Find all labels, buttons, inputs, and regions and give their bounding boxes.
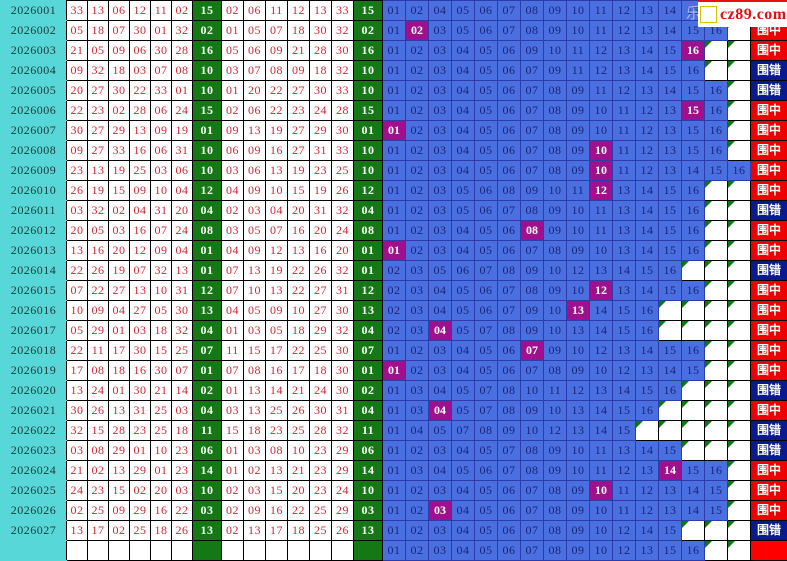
candidate-cell: 12 <box>613 361 636 381</box>
candidate-cell: 14 <box>636 241 659 261</box>
candidate-cell: 14 <box>636 281 659 301</box>
red-ball-cell: 06 <box>130 41 151 61</box>
blue-ball-cell: 13 <box>354 301 383 321</box>
red-ball-cell: 30 <box>130 21 151 41</box>
blue-ball-cell: 10 <box>354 161 383 181</box>
blue-ball-cell: 04 <box>354 201 383 221</box>
red-ball-sorted-cell: 31 <box>332 281 354 301</box>
candidate-cell: 13 <box>659 501 682 521</box>
candidate-empty-cell <box>682 261 705 281</box>
candidate-cell: 11 <box>590 441 613 461</box>
red-ball-sorted-cell: 06 <box>244 161 266 181</box>
red-ball-cell: 10 <box>151 441 172 461</box>
candidate-cell: 16 <box>705 101 728 121</box>
red-ball-cell <box>88 541 109 561</box>
blue-ball-cell: 01 <box>354 241 383 261</box>
red-ball-sorted-cell: 02 <box>222 481 244 501</box>
candidate-cell: 02 <box>383 261 406 281</box>
table-row: 2026004093218030708100307080918321001020… <box>1 61 787 81</box>
red-ball-sorted-cell: 09 <box>244 181 266 201</box>
candidate-empty-cell <box>705 421 728 441</box>
candidate-cell: 15 <box>613 301 636 321</box>
candidate-cell: 06 <box>498 501 521 521</box>
candidate-cell: 08 <box>544 101 567 121</box>
logo-partial-char: 乐 <box>686 0 698 27</box>
red-ball-sorted-cell: 04 <box>222 181 244 201</box>
candidate-cell: 07 <box>498 201 521 221</box>
red-ball-sorted-cell: 01 <box>222 81 244 101</box>
candidate-cell: 05 <box>429 261 452 281</box>
candidate-empty-cell <box>728 361 751 381</box>
blue-ball-cell: 01 <box>354 121 383 141</box>
red-ball-cell: 32 <box>172 321 193 341</box>
red-ball-cell: 07 <box>67 281 88 301</box>
table-row: 2026016100904270530130405091027301302030… <box>1 301 787 321</box>
blue-ball-cell: 15 <box>354 101 383 121</box>
candidate-empty-cell <box>659 401 682 421</box>
blue-ball-cell: 10 <box>354 81 383 101</box>
red-ball-cell: 29 <box>130 501 151 521</box>
red-ball-sorted-cell: 26 <box>332 521 354 541</box>
red-ball-cell <box>130 541 151 561</box>
red-ball-sorted-cell: 17 <box>266 341 288 361</box>
red-ball-cell: 16 <box>130 221 151 241</box>
candidate-cell: 12 <box>613 81 636 101</box>
candidate-cell: 08 <box>521 281 544 301</box>
red-ball-cell: 23 <box>88 481 109 501</box>
candidate-cell: 15 <box>682 461 705 481</box>
red-ball-sorted-cell: 03 <box>222 401 244 421</box>
red-ball-sorted-cell: 32 <box>332 421 354 441</box>
red-ball-sorted-cell: 01 <box>222 321 244 341</box>
candidate-cell: 06 <box>498 521 521 541</box>
candidate-cell: 05 <box>475 361 498 381</box>
red-ball-sorted-cell: 29 <box>332 441 354 461</box>
period-cell: 2026006 <box>1 101 67 121</box>
red-ball-cell: 09 <box>109 501 130 521</box>
candidate-cell: 16 <box>682 541 705 561</box>
candidate-cell: 03 <box>429 61 452 81</box>
red-ball-sorted-cell: 16 <box>310 241 332 261</box>
candidate-cell: 03 <box>429 41 452 61</box>
candidate-empty-cell <box>705 221 728 241</box>
candidate-cell: 12 <box>590 341 613 361</box>
red-ball-sorted-cell: 13 <box>244 521 266 541</box>
red-ball-sorted-cell: 07 <box>244 61 266 81</box>
candidate-empty-cell <box>705 541 728 561</box>
red-ball-cell <box>109 541 130 561</box>
red-ball-cell: 03 <box>172 401 193 421</box>
candidate-empty-cell <box>636 421 659 441</box>
table-row: 2026027131702251826130213171825261301020… <box>1 521 787 541</box>
candidate-cell: 08 <box>498 261 521 281</box>
candidate-cell: 02 <box>406 341 429 361</box>
candidate-cell: 02 <box>406 481 429 501</box>
candidate-cell: 16 <box>682 201 705 221</box>
table-row: 2026003210509063028160506092128301601020… <box>1 41 787 61</box>
red-ball-sorted-cell: 03 <box>244 481 266 501</box>
candidate-cell: 03 <box>406 461 429 481</box>
candidate-hit-cell: 01 <box>383 121 406 141</box>
red-ball-sorted-cell: 15 <box>244 341 266 361</box>
candidate-cell: 06 <box>475 461 498 481</box>
candidate-empty-cell <box>728 61 751 81</box>
red-ball-sorted-cell: 18 <box>288 521 310 541</box>
candidate-cell: 02 <box>406 361 429 381</box>
candidate-hit-cell: 10 <box>590 161 613 181</box>
red-ball-cell: 01 <box>151 21 172 41</box>
red-ball-cell: 26 <box>67 181 88 201</box>
candidate-cell: 06 <box>498 81 521 101</box>
candidate-cell: 13 <box>613 61 636 81</box>
red-ball-sorted-cell: 30 <box>310 81 332 101</box>
candidate-empty-cell <box>705 241 728 261</box>
candidate-cell: 13 <box>567 401 590 421</box>
red-ball-sorted-cell: 33 <box>332 1 354 21</box>
red-ball-cell: 27 <box>88 121 109 141</box>
red-ball-cell: 05 <box>67 321 88 341</box>
red-ball-sorted-cell: 23 <box>310 461 332 481</box>
candidate-hit-cell: 01 <box>383 241 406 261</box>
candidate-cell: 08 <box>544 481 567 501</box>
result-cell: 围中 <box>751 481 787 501</box>
red-ball-sorted-cell: 26 <box>288 401 310 421</box>
candidate-hit-cell: 04 <box>429 321 452 341</box>
red-ball-sorted-cell: 25 <box>310 521 332 541</box>
red-ball-cell: 22 <box>172 501 193 521</box>
red-ball-cell: 16 <box>88 241 109 261</box>
candidate-cell: 06 <box>475 21 498 41</box>
period-cell: 2026026 <box>1 501 67 521</box>
red-ball-cell: 14 <box>172 381 193 401</box>
red-ball-cell: 20 <box>172 201 193 221</box>
candidate-cell: 08 <box>544 501 567 521</box>
candidate-cell: 02 <box>406 1 429 21</box>
blue-ball-cell: 16 <box>193 41 222 61</box>
candidate-cell: 13 <box>590 261 613 281</box>
candidate-cell: 08 <box>521 1 544 21</box>
red-ball-cell: 24 <box>67 481 88 501</box>
candidate-cell: 04 <box>452 481 475 501</box>
candidate-cell: 06 <box>498 361 521 381</box>
candidate-cell: 07 <box>521 101 544 121</box>
candidate-cell: 13 <box>567 421 590 441</box>
candidate-cell: 10 <box>567 441 590 461</box>
candidate-hit-cell: 10 <box>590 141 613 161</box>
candidate-cell: 13 <box>636 541 659 561</box>
blue-ball-cell: 10 <box>193 141 222 161</box>
period-cell: 2026024 <box>1 461 67 481</box>
red-ball-sorted-cell: 10 <box>244 281 266 301</box>
red-ball-sorted-cell: 02 <box>222 201 244 221</box>
red-ball-cell: 27 <box>130 301 151 321</box>
candidate-cell: 12 <box>613 461 636 481</box>
candidate-cell: 09 <box>521 321 544 341</box>
red-ball-sorted-cell: 33 <box>332 81 354 101</box>
candidate-cell: 07 <box>521 241 544 261</box>
table-row: 2026023030829011023060103081023290601020… <box>1 441 787 461</box>
candidate-cell: 05 <box>452 21 475 41</box>
candidate-empty-cell <box>728 221 751 241</box>
period-cell: 2026002 <box>1 21 67 41</box>
result-cell: 围中 <box>751 501 787 521</box>
table-row: 2026013131620120904010409121316200101020… <box>1 241 787 261</box>
candidate-cell: 07 <box>521 521 544 541</box>
candidate-cell: 05 <box>452 181 475 201</box>
red-ball-sorted-cell <box>222 541 244 561</box>
candidate-cell: 15 <box>659 61 682 81</box>
red-ball-cell: 31 <box>130 401 151 421</box>
result-cell: 围中 <box>751 301 787 321</box>
red-ball-sorted-cell: 11 <box>266 1 288 21</box>
candidate-cell: 10 <box>590 501 613 521</box>
red-ball-sorted-cell: 20 <box>288 481 310 501</box>
candidate-cell: 16 <box>682 221 705 241</box>
candidate-cell: 06 <box>498 121 521 141</box>
candidate-cell: 07 <box>521 541 544 561</box>
red-ball-cell: 20 <box>67 221 88 241</box>
candidate-cell: 13 <box>613 181 636 201</box>
red-ball-cell: 29 <box>109 441 130 461</box>
period-cell: 2026015 <box>1 281 67 301</box>
candidate-cell: 04 <box>452 81 475 101</box>
result-cell: 围错 <box>751 381 787 401</box>
red-ball-sorted-cell: 30 <box>332 121 354 141</box>
red-ball-sorted-cell: 05 <box>244 221 266 241</box>
candidate-cell: 04 <box>452 361 475 381</box>
red-ball-sorted-cell: 04 <box>222 241 244 261</box>
red-ball-cell: 05 <box>151 301 172 321</box>
candidate-cell: 07 <box>521 61 544 81</box>
table-row: 2026010261915091004120409101519261201020… <box>1 181 787 201</box>
candidate-cell: 07 <box>521 121 544 141</box>
period-cell: 2026020 <box>1 381 67 401</box>
candidate-cell: 05 <box>475 341 498 361</box>
candidate-cell: 09 <box>544 1 567 21</box>
red-ball-cell: 07 <box>172 361 193 381</box>
candidate-empty-cell <box>705 281 728 301</box>
candidate-cell: 02 <box>406 81 429 101</box>
table-row: 2026001331306121102150206111213331501020… <box>1 1 787 21</box>
blue-ball-cell: 12 <box>193 281 222 301</box>
red-ball-sorted-cell: 09 <box>222 121 244 141</box>
candidate-cell: 13 <box>613 241 636 261</box>
candidate-cell: 14 <box>659 361 682 381</box>
candidate-empty-cell <box>728 341 751 361</box>
candidate-empty-cell <box>705 521 728 541</box>
candidate-empty-cell <box>728 101 751 121</box>
candidate-cell: 14 <box>659 81 682 101</box>
candidate-cell: 14 <box>636 521 659 541</box>
table-row: 2026018221117301525071115172225300701020… <box>1 341 787 361</box>
candidate-cell: 11 <box>590 81 613 101</box>
red-ball-sorted-cell: 13 <box>310 1 332 21</box>
candidate-hit-cell: 10 <box>590 481 613 501</box>
candidate-cell: 16 <box>705 141 728 161</box>
candidate-cell: 09 <box>567 521 590 541</box>
red-ball-cell: 06 <box>151 101 172 121</box>
candidate-cell: 06 <box>475 1 498 21</box>
red-ball-sorted-cell <box>332 541 354 561</box>
candidate-empty-cell <box>728 321 751 341</box>
candidate-cell: 12 <box>590 61 613 81</box>
red-ball-sorted-cell: 12 <box>266 241 288 261</box>
red-ball-sorted-cell: 18 <box>288 21 310 41</box>
candidate-cell: 10 <box>544 321 567 341</box>
red-ball-sorted-cell: 25 <box>332 161 354 181</box>
candidate-cell: 14 <box>659 21 682 41</box>
red-ball-cell: 32 <box>67 421 88 441</box>
red-ball-sorted-cell: 22 <box>266 101 288 121</box>
red-ball-cell: 02 <box>109 521 130 541</box>
candidate-cell: 13 <box>636 81 659 101</box>
table-row: 2026014222619073213010713192226320102030… <box>1 261 787 281</box>
period-cell: 2026027 <box>1 521 67 541</box>
candidate-cell: 01 <box>383 1 406 21</box>
candidate-empty-cell <box>705 361 728 381</box>
candidate-cell: 02 <box>406 441 429 461</box>
candidate-cell: 12 <box>567 261 590 281</box>
candidate-cell: 13 <box>613 341 636 361</box>
candidate-cell: 09 <box>567 361 590 381</box>
candidate-cell: 02 <box>406 121 429 141</box>
candidate-cell: 10 <box>567 21 590 41</box>
candidate-empty-cell <box>728 301 751 321</box>
table-row: 2026009231319250306100306131923251001020… <box>1 161 787 181</box>
red-ball-sorted-cell: 23 <box>310 161 332 181</box>
blue-ball-cell: 07 <box>354 341 383 361</box>
red-ball-cell: 23 <box>88 101 109 121</box>
red-ball-cell: 10 <box>151 281 172 301</box>
red-ball-sorted-cell: 22 <box>288 281 310 301</box>
red-ball-cell: 32 <box>88 61 109 81</box>
candidate-cell: 01 <box>383 521 406 541</box>
candidate-cell: 11 <box>613 121 636 141</box>
red-ball-sorted-cell: 17 <box>288 361 310 381</box>
blue-ball-cell: 03 <box>193 501 222 521</box>
red-ball-cell: 02 <box>172 1 193 21</box>
logo-site-name[interactable]: cz89.com <box>720 6 787 24</box>
site-logo[interactable]: 乐 cz89.com <box>686 0 787 27</box>
candidate-cell: 03 <box>429 541 452 561</box>
result-cell: 围错 <box>751 61 787 81</box>
red-ball-cell: 10 <box>151 181 172 201</box>
red-ball-sorted-cell: 15 <box>266 481 288 501</box>
candidate-cell: 04 <box>429 381 452 401</box>
table-row: 2026008092733160631100609162731331001020… <box>1 141 787 161</box>
candidate-cell: 05 <box>452 301 475 321</box>
candidate-empty-cell <box>728 501 751 521</box>
candidate-cell: 08 <box>544 141 567 161</box>
logo-box[interactable]: cz89.com <box>698 0 787 27</box>
red-ball-sorted-cell: 08 <box>266 61 288 81</box>
candidate-empty-cell <box>682 421 705 441</box>
candidate-cell: 07 <box>521 361 544 381</box>
red-ball-cell: 09 <box>151 121 172 141</box>
candidate-cell: 16 <box>659 261 682 281</box>
candidate-empty-cell <box>682 301 705 321</box>
candidate-cell: 03 <box>429 341 452 361</box>
candidate-empty-cell <box>728 121 751 141</box>
candidate-cell: 09 <box>521 301 544 321</box>
red-ball-sorted-cell: 13 <box>244 381 266 401</box>
red-ball-sorted-cell: 26 <box>332 181 354 201</box>
period-cell <box>1 541 67 561</box>
period-cell: 2026009 <box>1 161 67 181</box>
candidate-cell: 05 <box>475 481 498 501</box>
red-ball-cell: 03 <box>109 221 130 241</box>
red-ball-sorted-cell: 20 <box>310 221 332 241</box>
candidate-cell: 13 <box>613 41 636 61</box>
red-ball-sorted-cell: 02 <box>222 521 244 541</box>
red-ball-sorted-cell: 24 <box>310 101 332 121</box>
candidate-cell: 16 <box>682 341 705 361</box>
red-ball-sorted-cell: 25 <box>288 421 310 441</box>
red-ball-sorted-cell: 25 <box>310 501 332 521</box>
candidate-empty-cell <box>728 541 751 561</box>
red-ball-cell: 16 <box>151 501 172 521</box>
red-ball-sorted-cell: 18 <box>310 61 332 81</box>
result-cell: 围错 <box>751 441 787 461</box>
result-cell: 围错 <box>751 81 787 101</box>
candidate-empty-cell <box>705 301 728 321</box>
candidate-hit-cell: 07 <box>521 341 544 361</box>
red-ball-sorted-cell: 03 <box>222 161 244 181</box>
candidate-cell: 11 <box>567 61 590 81</box>
candidate-cell: 03 <box>406 401 429 421</box>
red-ball-cell: 32 <box>151 261 172 281</box>
candidate-cell: 05 <box>452 401 475 421</box>
candidate-empty-cell <box>728 521 751 541</box>
red-ball-cell: 12 <box>130 241 151 261</box>
candidate-cell: 08 <box>544 161 567 181</box>
red-ball-sorted-cell: 27 <box>288 121 310 141</box>
candidate-cell: 16 <box>659 381 682 401</box>
candidate-cell: 09 <box>544 461 567 481</box>
candidate-cell: 06 <box>475 201 498 221</box>
result-cell: 围错 <box>751 421 787 441</box>
candidate-cell: 07 <box>498 281 521 301</box>
table-row: 2026022321528232518111518232528321101040… <box>1 421 787 441</box>
red-ball-sorted-cell: 05 <box>244 301 266 321</box>
blue-ball-cell: 13 <box>193 301 222 321</box>
candidate-cell: 03 <box>429 201 452 221</box>
red-ball-sorted-cell: 07 <box>222 261 244 281</box>
blue-ball-cell: 03 <box>354 501 383 521</box>
candidate-cell: 15 <box>659 181 682 201</box>
red-ball-cell: 09 <box>67 141 88 161</box>
candidate-cell: 10 <box>590 101 613 121</box>
red-ball-cell: 07 <box>109 21 130 41</box>
trend-table: 2026001331306121102150206111213331501020… <box>0 0 787 561</box>
candidate-empty-cell <box>705 321 728 341</box>
candidate-cell: 12 <box>636 101 659 121</box>
candidate-cell: 02 <box>383 301 406 321</box>
candidate-cell: 04 <box>429 281 452 301</box>
red-ball-sorted-cell: 02 <box>222 101 244 121</box>
candidate-empty-cell <box>705 181 728 201</box>
candidate-empty-cell <box>705 381 728 401</box>
red-ball-sorted-cell: 29 <box>332 461 354 481</box>
candidate-cell: 04 <box>429 1 452 21</box>
table-row: 2026020132401302114020113142124300201030… <box>1 381 787 401</box>
candidate-cell: 02 <box>383 281 406 301</box>
blue-ball-cell: 06 <box>193 441 222 461</box>
candidate-cell: 09 <box>544 441 567 461</box>
candidate-empty-cell <box>659 321 682 341</box>
candidate-cell: 06 <box>475 301 498 321</box>
candidate-empty-cell <box>728 241 751 261</box>
